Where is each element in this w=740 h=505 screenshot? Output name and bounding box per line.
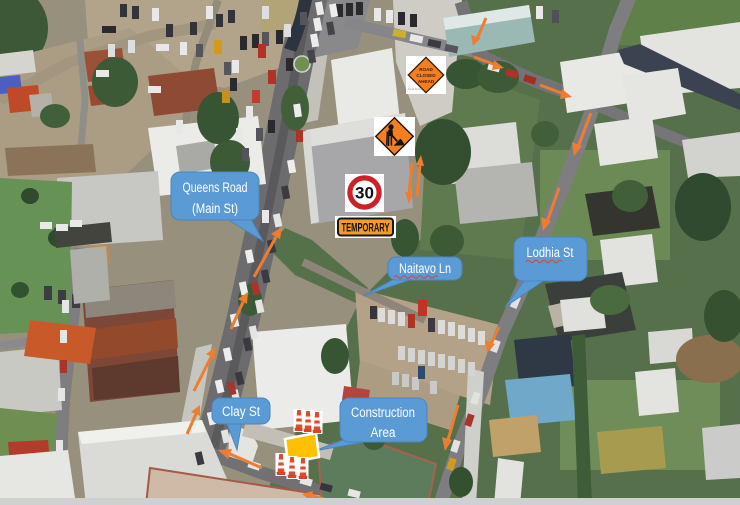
svg-text:(Main St): (Main St) <box>192 201 238 216</box>
svg-text:Area: Area <box>371 425 396 440</box>
svg-text:AHEAD: AHEAD <box>418 79 435 84</box>
svg-text:Queens Road: Queens Road <box>183 180 248 195</box>
svg-text:Lodhia St: Lodhia St <box>527 245 574 260</box>
svg-text:Construction: Construction <box>351 405 415 420</box>
svg-text:CLOSED: CLOSED <box>416 73 436 78</box>
svg-text:30: 30 <box>355 184 374 203</box>
svg-text:Road Works: Road Works <box>408 87 423 91</box>
svg-text:ROAD: ROAD <box>419 67 433 72</box>
svg-text:Clay St: Clay St <box>222 404 260 419</box>
svg-text:TEMPORARY: TEMPORARY <box>342 223 390 235</box>
svg-text:Naitavo Ln: Naitavo Ln <box>399 261 451 276</box>
